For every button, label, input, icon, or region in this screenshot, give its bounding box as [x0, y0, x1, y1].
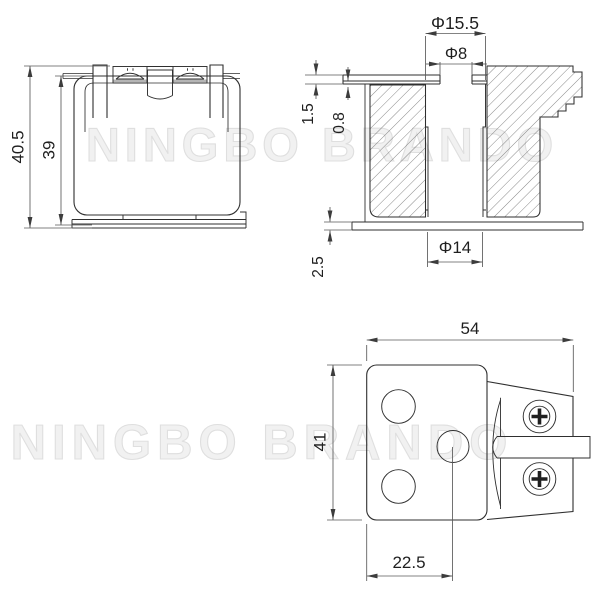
- dim-step-depth: 0.8: [331, 67, 348, 134]
- coil-section-right: [487, 66, 582, 217]
- svg-text:41: 41: [310, 433, 329, 452]
- svg-text:40.5: 40.5: [8, 130, 27, 163]
- svg-text:2.5: 2.5: [310, 256, 327, 278]
- screw-bottom: [523, 463, 556, 496]
- dim-width: 54: [367, 319, 574, 392]
- svg-text:Φ14: Φ14: [439, 238, 471, 257]
- dim-body-height: 39: [39, 76, 61, 225]
- screw-top: [523, 400, 556, 433]
- top-flange-plate: [343, 75, 487, 84]
- terminal-post-right: [210, 65, 223, 118]
- technical-drawing-page: NINGBO BRANDO NINGBO BRANDO 40.5: [0, 0, 600, 600]
- section-base-plate: [352, 222, 583, 230]
- screw-dome-right: [176, 68, 204, 79]
- svg-text:54: 54: [461, 319, 480, 338]
- drawing-canvas: NINGBO BRANDO NINGBO BRANDO 40.5: [0, 0, 600, 600]
- dim-overall-height: 40.5: [8, 66, 30, 228]
- svg-text:39: 39: [39, 141, 58, 160]
- phillips-cross-icon: [532, 471, 548, 487]
- svg-text:22.5: 22.5: [392, 553, 425, 572]
- terminal-post-left: [93, 65, 107, 118]
- svg-text:0.8: 0.8: [331, 112, 348, 134]
- dim-plate-thickness: 2.5: [310, 207, 352, 278]
- dim-bottom-bore: Φ14: [428, 232, 483, 267]
- base-plate: [72, 212, 246, 228]
- mounting-hole-bottom: [382, 470, 416, 504]
- dim-pilot-hole: Φ8: [426, 45, 487, 75]
- phillips-cross-icon: [532, 409, 548, 425]
- screw-dome-left: [116, 68, 144, 79]
- terminal-sill-left: [114, 80, 147, 83]
- coil-section-left: [370, 85, 426, 217]
- terminal-sill-right: [174, 80, 207, 83]
- watermark-bottom: NINGBO BRANDO: [11, 416, 514, 470]
- svg-text:Φ15.5: Φ15.5: [431, 13, 479, 33]
- svg-text:Φ8: Φ8: [445, 45, 467, 63]
- svg-text:1.5: 1.5: [300, 103, 317, 125]
